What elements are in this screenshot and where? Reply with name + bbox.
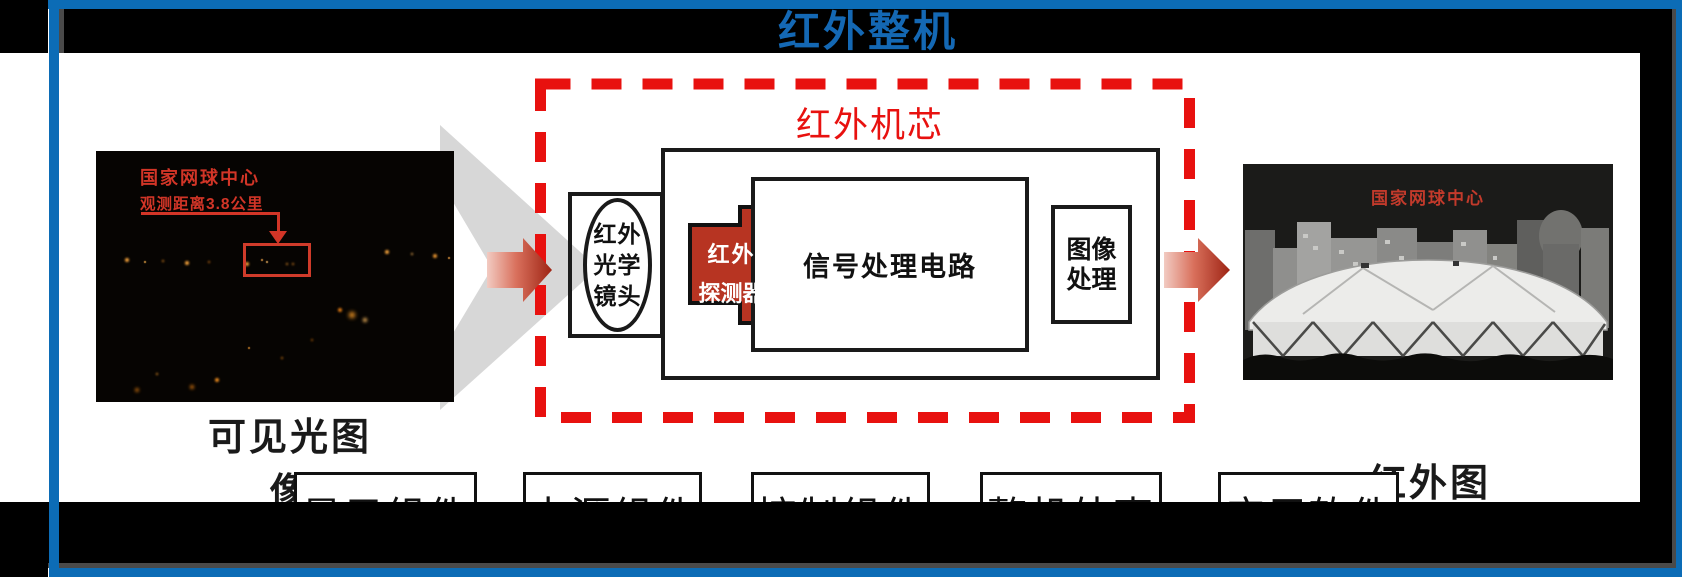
slide-canvas: 红外 光学 镜头 红外 探测器 信号处理电路 图像 处理 红外机芯 (0, 0, 1682, 577)
blue-frame-left (49, 0, 59, 577)
bottom-black-bar (48, 502, 1672, 563)
corner-patch-bottom-left (0, 502, 48, 577)
blue-frame-right (1676, 0, 1682, 577)
visible-light-photo: 国家网球中心 观测距离3.8公里 (96, 151, 454, 402)
blue-frame-bottom (59, 568, 1676, 577)
corner-patch-top-left (0, 0, 48, 53)
city-lights-dots (96, 151, 98, 153)
right-black-strip (1640, 9, 1672, 563)
visible-annotation-title: 国家网球中心 (140, 164, 260, 190)
slide-title: 红外整机 (706, 9, 1030, 55)
gray-edge-top-left (59, 9, 64, 53)
infrared-photo: 国家网球中心 (1243, 164, 1613, 380)
annotation-underline (141, 212, 279, 215)
infrared-annotation-title: 国家网球中心 (1243, 184, 1613, 209)
annotation-pointer-line (277, 212, 280, 233)
annotation-target-rect (243, 243, 311, 277)
core-module-title: 红外机芯 (760, 97, 980, 148)
visible-annotation-distance: 观测距离3.8公里 (140, 192, 264, 214)
